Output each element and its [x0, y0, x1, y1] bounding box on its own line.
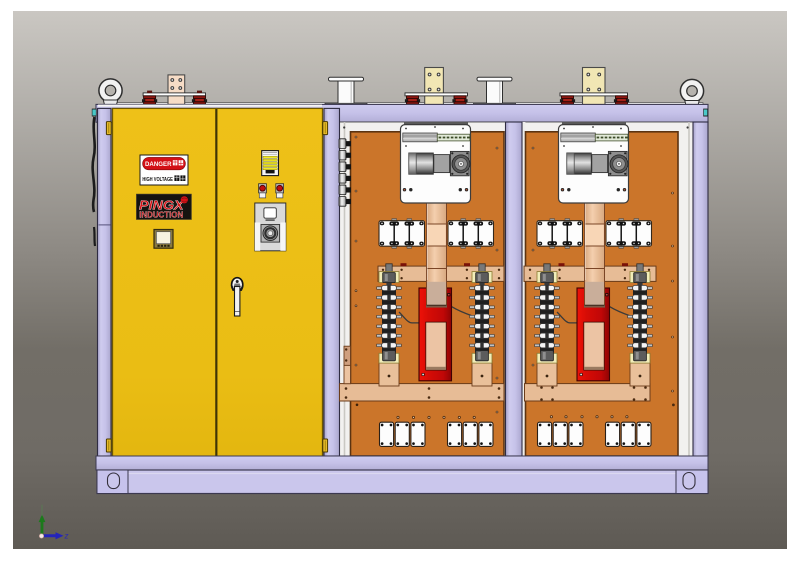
svg-text:HIGH VOLTAGE: HIGH VOLTAGE: [142, 177, 173, 183]
svg-text:DANGER: DANGER: [145, 161, 172, 168]
svg-text:INDUCTION: INDUCTION: [139, 211, 183, 220]
svg-text:z: z: [64, 532, 69, 541]
